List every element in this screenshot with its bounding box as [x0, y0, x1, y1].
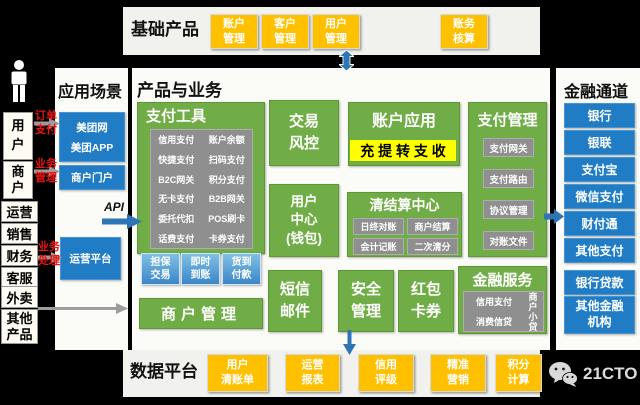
credit-pay-item: 信用支付 [466, 295, 522, 308]
pay-mgmt-box: 支付管理 支付网关 支付路由 协议管理 对账文件 [468, 102, 547, 257]
meituan-portal-box: 美团网 美团APP [59, 112, 125, 162]
payment-tools-title: 支付工具 [146, 105, 206, 126]
user-center-box: 用户 中心 (钱包) [269, 184, 339, 257]
tool-b2b-gateway: B2B网关 [202, 192, 253, 205]
consumer-credit-item: 消费信贷 [466, 315, 522, 328]
tool-quick-pay: 快捷支付 [151, 153, 202, 166]
ops-platform-box: 运营平台 [60, 237, 121, 280]
bookkeeping-box: 账务 核算 [440, 14, 488, 49]
payment-tools-list: 信用支付 快捷支付 B2C网关 无卡支付 委托代扣 话费支付 账户余额 扫码支付… [150, 129, 253, 249]
clearing-item-second-split: 二次清分 [407, 238, 458, 255]
logo: 21CTO [548, 360, 638, 388]
basic-products-panel: 基础产品 账户 管理 客户 管理 用户 管理 账务 核算 [123, 7, 540, 55]
role-finance: 财务 [1, 245, 38, 266]
api-label: API [104, 200, 124, 214]
payment-tools-col2: 账户余额 扫码支付 积分支付 B2B网关 POS刷卡 卡券支付 [202, 130, 253, 248]
other-fin-inst-box: 其他金融 机构 [564, 296, 635, 334]
recon-file-item: 对账文件 [483, 231, 534, 250]
ops-report-box: 运营 报表 [285, 354, 340, 392]
meituan-app-label: 美团APP [71, 140, 114, 155]
actor-merchant: 商 户 [3, 161, 33, 199]
basic-products-title: 基础产品 [131, 15, 199, 40]
credit-rating-box: 信用 评级 [358, 354, 414, 392]
channel-wechat-pay: 微信支付 [564, 184, 635, 209]
merchant-mgmt-box: 商户管理 [139, 298, 263, 329]
tool-b2c-gateway: B2C网关 [151, 173, 202, 186]
tool-coupon-pay: 卡券支付 [202, 232, 253, 245]
protocol-mgmt-item: 协议管理 [483, 200, 534, 219]
pay-routing-item: 支付路由 [483, 169, 534, 188]
cod-box: 货到 付款 [222, 253, 261, 285]
user-mgmt-box: 用户 管理 [312, 14, 360, 49]
channel-tenpay: 财付通 [564, 211, 635, 236]
role-service: 客服 [1, 267, 38, 288]
biz-process-label: 业务 处理 [37, 241, 61, 269]
precision-marketing-box: 精准 营销 [430, 354, 486, 392]
role-sales: 销售 [1, 223, 38, 244]
products-business-title: 产品与业务 [137, 76, 222, 101]
merchant-microloan-vertical: 商 户 小 贷 [526, 293, 540, 333]
roles-group: 运营 销售 财务 客服 [1, 201, 38, 288]
clearing-item-accounting: 会计记账 [353, 238, 404, 255]
financial-channels-panel: 金融通道 银行 银联 支付宝 微信支付 财付通 其他支付 银行贷款 其他金融 机… [556, 68, 640, 350]
trade-risk-box: 交易 风控 [269, 100, 339, 166]
double-arrow-icon [339, 50, 354, 71]
others-to-platform-arrow [38, 303, 128, 314]
tool-entrust-debit: 委托代扣 [151, 212, 202, 225]
person-icon [8, 60, 30, 103]
biz-mgmt-label: 业务 管理 [33, 158, 59, 186]
clearing-center-title: 清结算中心 [348, 195, 461, 215]
channel-alipay: 支付宝 [564, 157, 635, 182]
account-mgmt-box: 账户 管理 [210, 14, 258, 49]
channel-bank: 银行 [564, 103, 635, 128]
account-ops-highlight: 充 提 转 支 收 [350, 140, 456, 161]
architecture-diagram: 基础产品 账户 管理 客户 管理 用户 管理 账务 核算 用 户 商 户 运营 … [0, 0, 640, 405]
security-mgmt-box: 安全 管理 [338, 270, 394, 332]
bank-loan-box: 银行贷款 [564, 270, 635, 295]
tool-scan-pay: 扫码支付 [202, 153, 253, 166]
pay-gateway-item: 支付网关 [483, 138, 534, 157]
customer-mgmt-box: 客户 管理 [261, 14, 309, 49]
data-platform-panel: 数据平台 用户 清账单 运营 报表 信用 评级 精准 营销 积分 计算 [123, 350, 540, 397]
clearing-center-box: 清结算中心 日终对账 商户结算 会计记账 二次清分 [347, 192, 462, 257]
tool-phone-bill-pay: 话费支付 [151, 232, 202, 245]
fin-service-inner: 信用支付 消费信贷 商 户 小 贷 [463, 291, 544, 332]
financial-channels-title: 金融通道 [564, 78, 628, 102]
pay-mgmt-title: 支付管理 [469, 109, 546, 130]
wechat-icon [548, 360, 578, 388]
account-app-title: 账户应用 [349, 107, 459, 131]
tool-cardless-pay: 无卡支付 [151, 192, 202, 205]
channel-other-pay: 其他支付 [564, 238, 635, 263]
fin-service-title: 金融服务 [459, 269, 546, 290]
points-calc-box: 积分 计算 [495, 354, 542, 392]
to-data-platform-arrow [343, 330, 356, 355]
merchant-portal-box: 商户门户 [59, 165, 125, 190]
tool-points-pay: 积分支付 [202, 173, 253, 186]
clearing-item-eod: 日终对账 [353, 218, 404, 235]
order-pay-label: 订单 支付 [33, 110, 59, 138]
tool-account-balance: 账户余额 [202, 133, 253, 146]
payment-tools-col1: 信用支付 快捷支付 B2C网关 无卡支付 委托代扣 话费支付 [151, 130, 202, 248]
clearing-item-merchant-settle: 商户结算 [407, 218, 458, 235]
takeout-cell: 外卖 [1, 286, 38, 308]
guaranteed-trade-box: 担保 交易 [141, 253, 180, 285]
instant-credit-box: 即时 到账 [181, 253, 220, 285]
actor-user: 用 户 [3, 112, 33, 160]
meituan-web-label: 美团网 [76, 120, 108, 135]
channel-unionpay: 银联 [564, 130, 635, 155]
others-group: 外卖 其他 产品 [1, 286, 38, 344]
to-tenpay-arrow [544, 209, 564, 224]
data-platform-title: 数据平台 [130, 357, 198, 382]
other-products-cell: 其他 产品 [1, 309, 38, 344]
payment-tools-box: 支付工具 信用支付 快捷支付 B2C网关 无卡支付 委托代扣 话费支付 账户余额… [137, 102, 265, 254]
sms-email-box: 短信 邮件 [268, 270, 322, 332]
account-app-box: 账户应用 充 提 转 支 收 [348, 102, 460, 166]
app-scenarios-title: 应用场景 [58, 78, 122, 102]
tool-pos-swipe: POS刷卡 [202, 212, 253, 225]
api-arrow [102, 214, 142, 229]
user-statement-box: 用户 清账单 [207, 354, 268, 392]
role-operations: 运营 [1, 201, 38, 222]
logo-text: 21CTO [583, 364, 638, 384]
fin-service-box: 金融服务 信用支付 消费信贷 商 户 小 贷 [458, 266, 547, 334]
products-business-panel: 产品与业务 支付工具 信用支付 快捷支付 B2C网关 无卡支付 委托代扣 话费支… [132, 68, 550, 350]
redpacket-coupon-box: 红包 卡券 [398, 270, 454, 332]
tool-credit-pay: 信用支付 [151, 133, 202, 146]
